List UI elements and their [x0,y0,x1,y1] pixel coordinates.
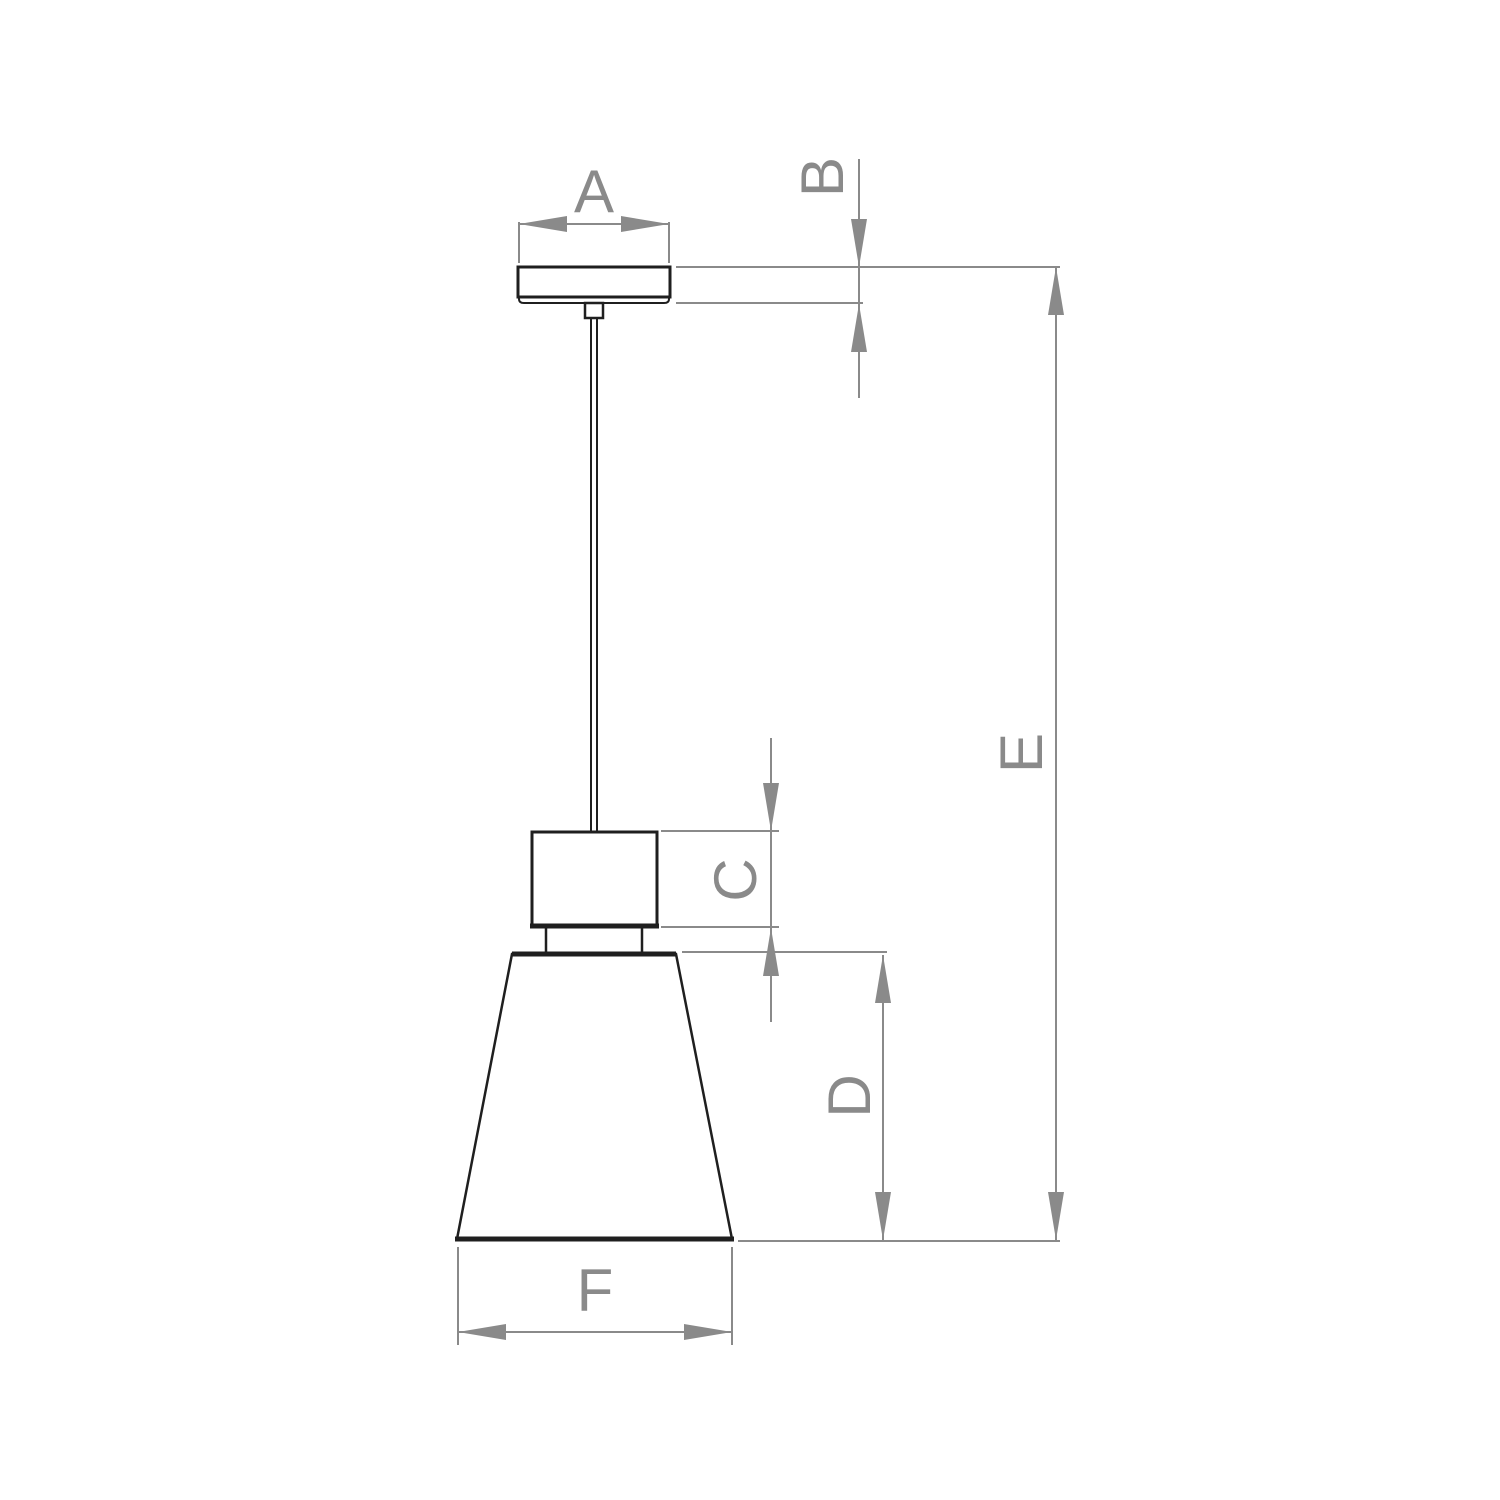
dim-f-arrow-right-icon [684,1324,732,1340]
dimension-d: D [682,952,1060,1241]
socket-body [532,832,657,927]
dim-d-arrow-down-icon [875,1192,891,1240]
dim-b-arrow-up-icon [851,304,867,352]
pendant-lamp [455,267,734,1239]
dimension-a-label: A [574,158,614,225]
dimension-a: A [519,158,669,263]
dim-c-arrow-down-icon [763,783,779,831]
dimension-f-label: F [577,1257,614,1324]
dimension-e-label: E [988,733,1055,773]
dim-e-arrow-down-icon [1048,1192,1064,1240]
cord-nipple [585,303,603,318]
dim-e-arrow-up-icon [1048,267,1064,315]
dimension-d-label: D [816,1074,883,1117]
dim-a-arrow-left-icon [519,216,567,232]
shade-body [457,954,732,1239]
dim-a-arrow-right-icon [621,216,669,232]
dimension-drawing-canvas: A B E C D F [0,0,1500,1500]
dim-b-arrow-down-icon [851,219,867,267]
dimension-f: F [458,1247,732,1345]
dimension-c-label: C [702,858,769,901]
canopy-body [518,267,670,297]
dimension-e: E [988,267,1064,1240]
dimension-b: B [676,157,1060,398]
dimension-b-label: B [789,157,856,197]
dim-d-arrow-up-icon [875,955,891,1003]
drawing-page: A B E C D F [0,0,1500,1500]
dim-f-arrow-left-icon [458,1324,506,1340]
